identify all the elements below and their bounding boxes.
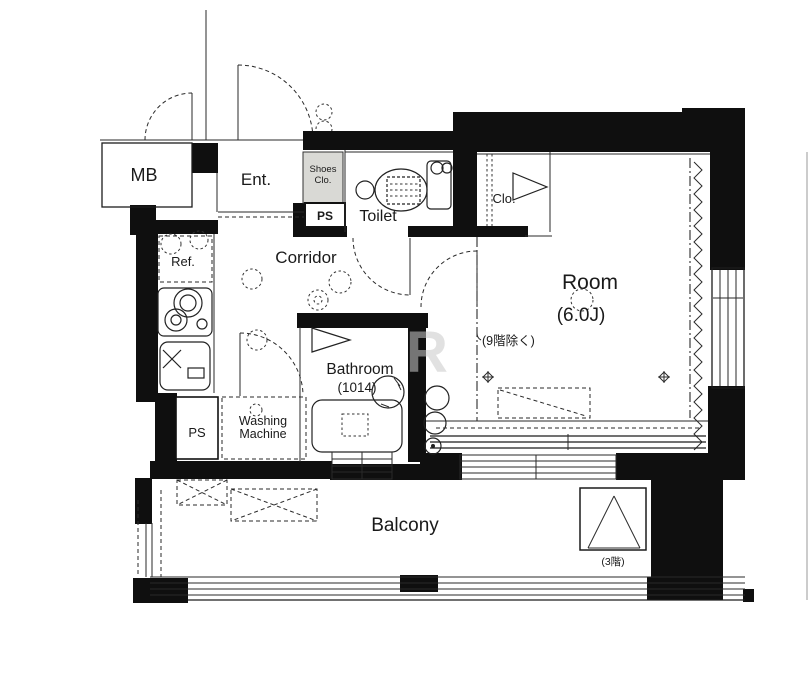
- wall-segment: [155, 220, 218, 234]
- corridor-area: Corridor: [242, 248, 477, 310]
- sprinkler-symbol: [658, 371, 670, 383]
- washroom-area: Washing Machine PS: [176, 330, 306, 459]
- closet-area: Clo.: [487, 152, 552, 236]
- exhaust-symbol-inner: [314, 296, 322, 304]
- closet-door-triangle-icon: [513, 173, 547, 200]
- stove-knob: [197, 319, 207, 329]
- closet-label: Clo.: [492, 191, 515, 206]
- ceiling-light-symbol: [329, 271, 351, 293]
- stove-burner: [165, 309, 187, 331]
- sink-drain: [188, 368, 204, 378]
- stove-burner: [174, 289, 202, 317]
- balcony-label: Balcony: [371, 515, 439, 536]
- bathroom-label: Bathroom: [326, 361, 393, 378]
- meter-box-label: MB: [131, 165, 158, 185]
- pipe-space-upper-label: PS: [317, 209, 333, 223]
- room-door-arc: [421, 251, 477, 307]
- vent-symbol: [161, 234, 181, 254]
- wall-segment: [616, 453, 712, 480]
- floor-plan-page: MB Ent. Shoes Clo. PS Toilet Cl: [0, 0, 812, 685]
- sprinkler-symbol: [482, 371, 494, 383]
- pipe-space-lower-label: PS: [188, 425, 206, 440]
- toilet-tank-faucet: [431, 162, 443, 174]
- equipment-pad-symbol: [177, 480, 227, 505]
- wall-segment: [477, 131, 567, 150]
- vanity-bowl-icon: [425, 386, 449, 410]
- wall-segment: [303, 131, 455, 150]
- toilet-label: Toilet: [359, 208, 397, 225]
- wall-segment: [710, 148, 745, 270]
- toilet-handle-icon: [356, 181, 374, 199]
- washroom-door-arc: [240, 333, 303, 395]
- washing-machine-label-1: Washing: [239, 414, 287, 428]
- wall-hatch-zigzag: [694, 162, 702, 450]
- kitchen-area: Ref.: [158, 231, 214, 393]
- door-knob-symbol: [316, 104, 332, 120]
- evacuation-hatch-symbol: (3階): [580, 488, 646, 568]
- entrance-area: Ent. Shoes Clo. PS: [217, 152, 345, 227]
- toilet-room: Toilet: [345, 150, 453, 295]
- wall-segment: [408, 226, 528, 237]
- ceiling-light-symbol: [242, 269, 262, 289]
- note-leader-line: [477, 333, 481, 340]
- meter-box-room: MB: [102, 143, 192, 207]
- ceiling-light-symbol: [247, 330, 267, 350]
- kitchen-sink-icon: [160, 342, 210, 390]
- vanity-area: [424, 386, 449, 454]
- shoes-closet-label-1: Shoes: [310, 164, 337, 175]
- wall-corner: [682, 108, 745, 152]
- evacuation-hatch-label: (3階): [601, 556, 624, 568]
- mb-door-arc: [145, 93, 192, 140]
- wall-segment: [155, 393, 177, 463]
- entrance-label: Ent.: [241, 170, 271, 189]
- bathroom-size-label: (1014): [337, 380, 376, 395]
- room-size-label: (6.0J): [557, 305, 606, 326]
- refrigerator-label: Ref.: [171, 254, 195, 269]
- wall-segment: [136, 220, 158, 402]
- wall-segment: [192, 143, 218, 173]
- exterior-door-swings: [100, 10, 332, 140]
- stove-burner-inner: [180, 295, 196, 311]
- floor-plan-drawing: MB Ent. Shoes Clo. PS Toilet Cl: [0, 0, 812, 685]
- shoes-closet-label-2: Clo.: [315, 175, 332, 186]
- step-sill: [460, 455, 616, 479]
- wall-segment: [133, 578, 188, 603]
- stove-burner-inner: [171, 315, 181, 325]
- wall-segment: [420, 453, 462, 480]
- exhaust-symbol: [308, 290, 328, 310]
- entry-door-arc: [238, 65, 313, 140]
- watermark-text: R: [406, 320, 448, 385]
- washing-machine-label-2: Machine: [239, 427, 286, 441]
- bathroom-area: Bathroom (1014): [300, 327, 404, 462]
- room-note-label: (9階除く): [482, 333, 535, 348]
- wall-segment: [708, 386, 745, 480]
- room-label: Room: [562, 271, 618, 294]
- corridor-label: Corridor: [275, 248, 337, 267]
- wall-segment: [150, 461, 332, 479]
- bathtub-drain: [342, 414, 368, 436]
- toilet-door-arc: [353, 238, 410, 295]
- counter-diagonal: [500, 390, 586, 416]
- vanity-bowl-icon: [424, 412, 446, 434]
- wall-block-balcony-right: [651, 478, 723, 578]
- equipment-pad-symbol: [231, 489, 317, 521]
- bathroom-door-triangle-icon: [312, 328, 350, 352]
- right-window: [712, 268, 744, 388]
